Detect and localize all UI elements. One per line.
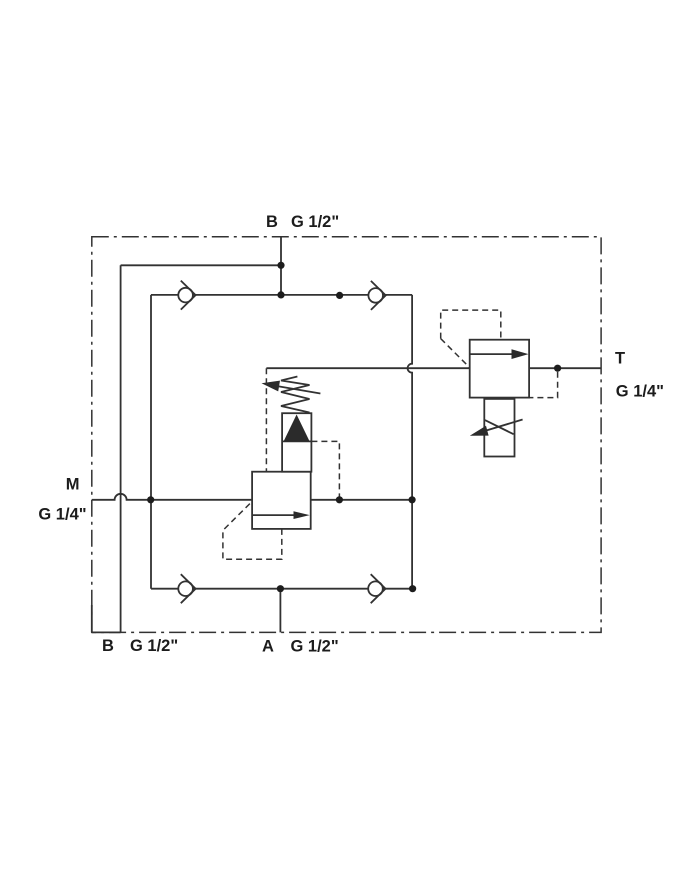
svg-text:G 1/4": G 1/4" bbox=[38, 505, 86, 523]
svg-text:G 1/2": G 1/2" bbox=[291, 213, 339, 231]
svg-text:B: B bbox=[266, 213, 278, 231]
svg-text:A: A bbox=[262, 638, 274, 656]
svg-text:B: B bbox=[102, 637, 114, 655]
svg-text:G 1/2": G 1/2" bbox=[130, 637, 178, 655]
svg-text:G 1/4": G 1/4" bbox=[616, 383, 664, 401]
svg-text:T: T bbox=[615, 350, 625, 368]
svg-text:G 1/2": G 1/2" bbox=[291, 638, 339, 656]
svg-text:M: M bbox=[66, 476, 80, 494]
